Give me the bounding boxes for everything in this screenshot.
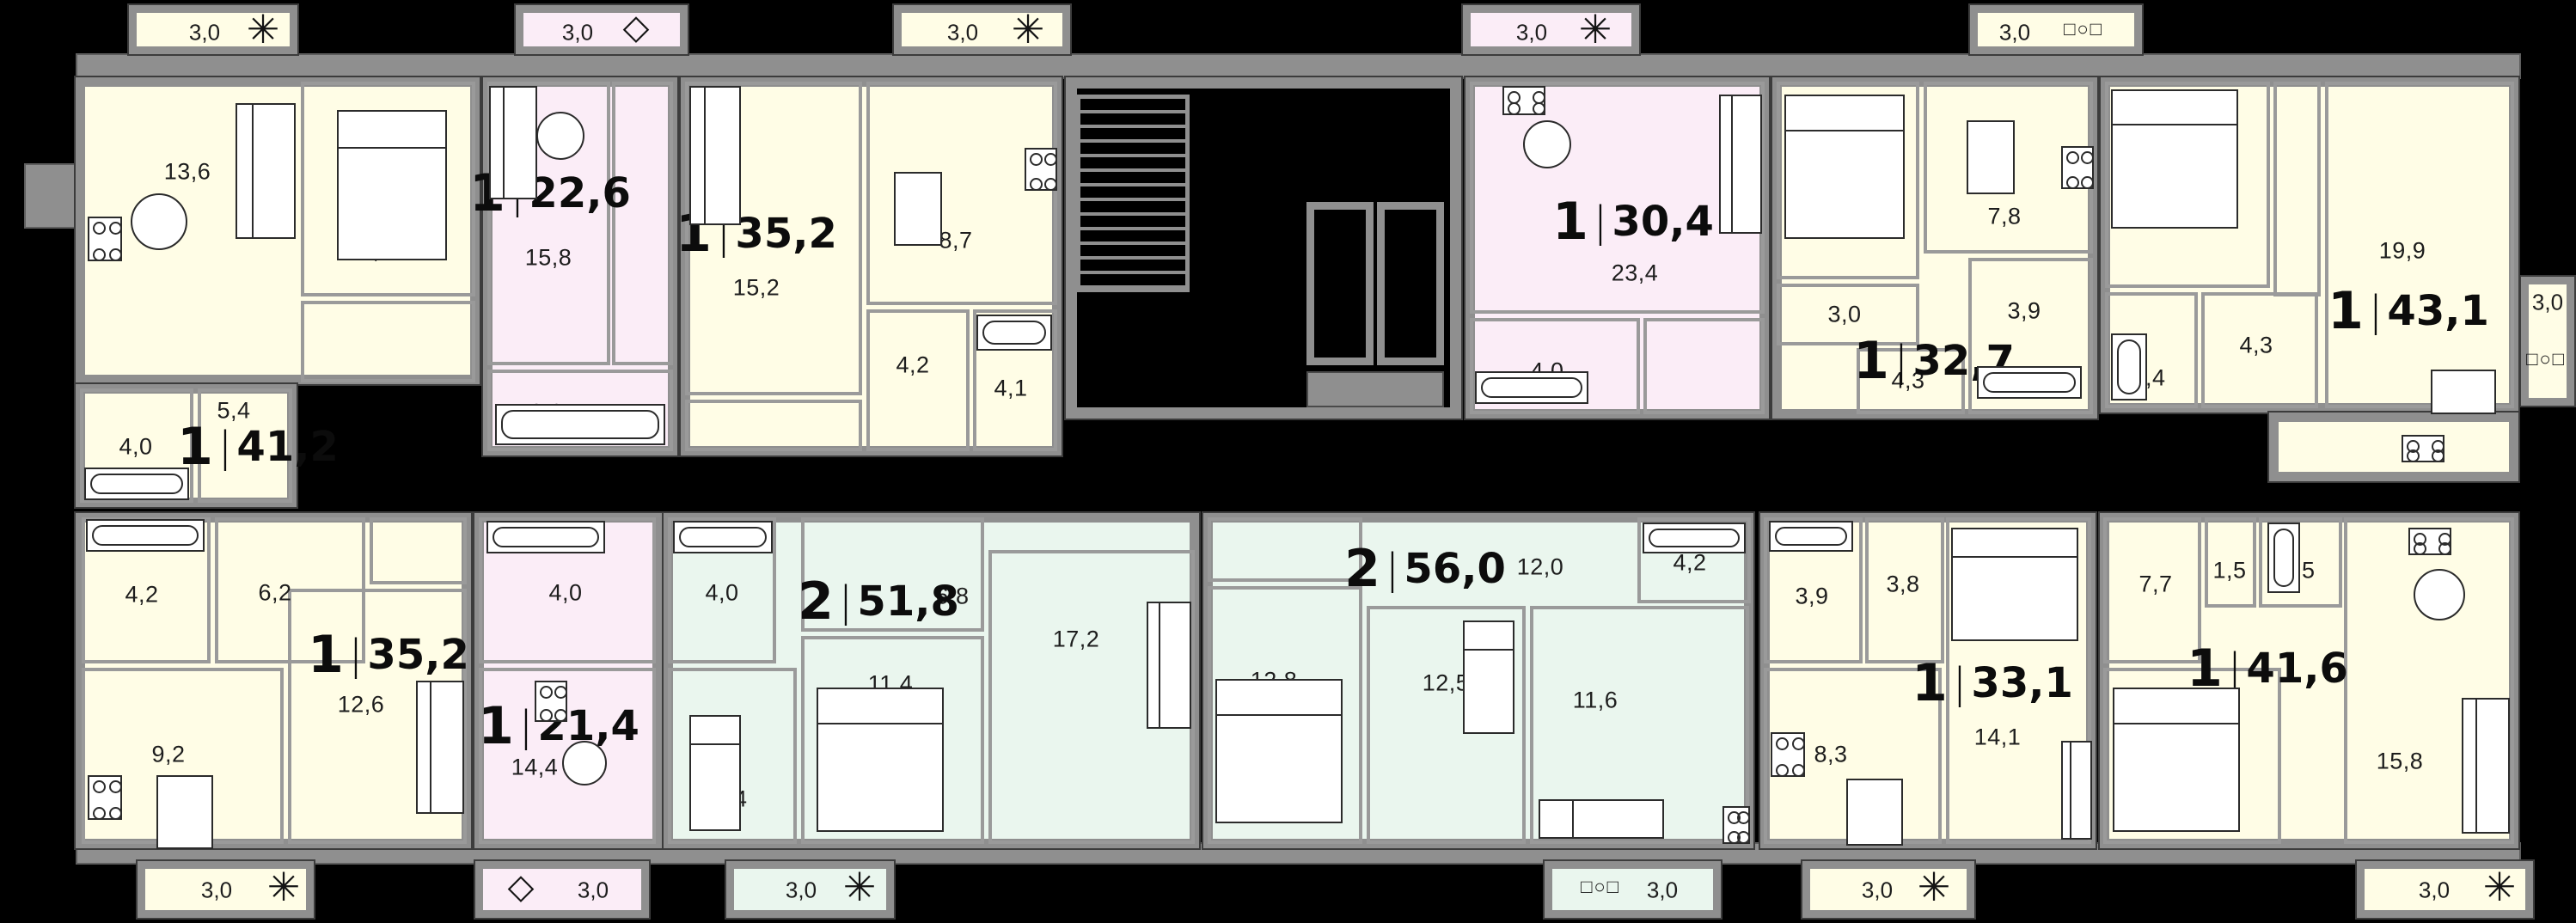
furniture-sofa-icon [1539, 799, 1664, 839]
furniture-sofa-icon [1719, 95, 1762, 234]
furniture-sofa-icon [489, 86, 537, 199]
apartment-rooms-count: 2 [798, 576, 834, 627]
apartment-label: 1|43,1 [2328, 285, 2489, 337]
apartment-label: 1|41,2 [177, 421, 339, 473]
room-area-label: 4,2 [125, 582, 158, 608]
apartment-total-area: 43,1 [2387, 290, 2488, 332]
bathtub-icon [2267, 523, 2300, 593]
room-area-label: 4,3 [2239, 333, 2273, 359]
bathtub-icon [1475, 371, 1588, 404]
stove-icon [1502, 86, 1545, 115]
furniture-sofa-icon [1147, 602, 1191, 729]
bathtub-icon [84, 468, 189, 500]
apartment-unit-bottom-1[interactable] [76, 513, 471, 848]
furniture-table-icon [1523, 120, 1571, 168]
room-area-label: 1,5 [2212, 558, 2246, 584]
furniture-table-icon [536, 112, 584, 160]
room-area-label: 3,8 [1886, 572, 1919, 598]
apartment-total-area: 35,2 [367, 634, 468, 675]
apartment-label: 2|51,8 [798, 576, 959, 627]
separator-bar: | [352, 633, 358, 677]
bathtub-icon [1643, 523, 1746, 553]
furniture-bed-icon [689, 715, 741, 831]
plant-icon: ✳ [843, 864, 877, 910]
stove-icon [1025, 148, 1057, 191]
balcony-bottom-2 [475, 861, 649, 918]
easel-icon: ◇ [508, 867, 535, 907]
balcony-bottom-4 [1545, 861, 1721, 918]
furniture-table-icon [1967, 120, 2015, 194]
apartment-total-area: 51,8 [857, 581, 958, 622]
room-area-label: 8,3 [1814, 742, 1847, 768]
plant-icon: ✳ [267, 864, 301, 910]
apartment-rooms-count: 1 [2187, 643, 2223, 694]
room-area-label: 4,0 [548, 580, 582, 607]
bathtub-icon [673, 521, 773, 553]
stove-icon [2408, 528, 2451, 555]
bathtub-icon [86, 519, 205, 552]
room-area-label: 4,2 [1673, 550, 1706, 577]
apartment-label: 1|30,4 [1552, 196, 1714, 248]
room-area-label: 14,1 [1974, 724, 2022, 751]
separator-bar: | [222, 425, 228, 469]
separator-bar: | [1956, 661, 1962, 706]
room-area-label: 8,7 [939, 228, 972, 254]
furniture-table-icon [156, 775, 213, 849]
bathtub-icon [1977, 366, 2082, 399]
room-area-label: 12,6 [338, 692, 385, 718]
elevator-shaft [1306, 202, 1374, 365]
balcony-area-label: 3,0 [2532, 290, 2563, 316]
chairs-icon: □○□ [2526, 348, 2566, 370]
apartment-rooms-count: 1 [1853, 335, 1889, 387]
furniture-bed-icon [337, 110, 447, 260]
apartment-label: 1|35,2 [308, 629, 469, 681]
room-area-label: 3,9 [2007, 298, 2041, 325]
apartment-rooms-count: 1 [2328, 285, 2364, 337]
bathtub-icon [1769, 521, 1853, 552]
balcony-area-label: 3,0 [947, 20, 978, 46]
apartment-rooms-count: 1 [478, 700, 514, 752]
apartment-unit-bottom-2[interactable] [474, 513, 662, 848]
apartment-total-area: 22,6 [529, 173, 630, 214]
furniture-table-icon [2431, 370, 2496, 414]
chairs-icon: □○□ [1581, 876, 1620, 898]
balcony-top-2 [516, 5, 688, 54]
furniture-table-icon [562, 741, 607, 785]
apartment-total-area: 30,4 [1612, 201, 1713, 242]
balcony-area-label: 3,0 [578, 877, 609, 904]
furniture-sofa-icon [689, 86, 741, 225]
room-area-label: 9,2 [151, 742, 185, 768]
bathtub-icon [976, 315, 1052, 351]
furniture-bed-icon [1784, 95, 1905, 239]
furniture-sofa-icon [2462, 698, 2510, 834]
room-area-label: 4,0 [119, 434, 152, 461]
balcony-area-label: 3,0 [1999, 20, 2030, 46]
furniture-table-icon [1846, 779, 1903, 846]
plant-icon: ✳ [1918, 864, 1951, 910]
separator-bar: | [842, 579, 848, 624]
room-area-label: 14,4 [511, 755, 559, 781]
stove-icon [1771, 732, 1805, 777]
room-area-label: 5,4 [217, 398, 250, 425]
furniture-sofa-icon [2061, 741, 2092, 840]
furniture-table-icon [2414, 569, 2465, 620]
separator-bar: | [1597, 199, 1603, 244]
balcony-area-label: 3,0 [189, 20, 220, 46]
apartment-rooms-count: 1 [1912, 657, 1948, 709]
apartment-label: 2|56,0 [1344, 543, 1506, 595]
stairwell-icon [1076, 95, 1190, 292]
bathtub-icon [2111, 333, 2147, 400]
apartment-unit-top-6[interactable] [2269, 413, 2518, 481]
apartment-total-area: 41,6 [2246, 648, 2347, 689]
apartment-rooms-count: 1 [177, 421, 213, 473]
room-area-label: 12,0 [1517, 554, 1564, 581]
balcony-area-label: 3,0 [1862, 877, 1893, 904]
room-area-label: 3,9 [1795, 584, 1828, 610]
apartment-total-area: 56,0 [1404, 548, 1505, 590]
floor-plan-canvas: 13,615,25,44,01|41,23,0✳15,83,81|22,63,0… [0, 0, 2576, 923]
plant-icon: ✳ [1012, 6, 1045, 52]
room-area-label: 4,2 [896, 352, 929, 379]
plant-icon: ✳ [247, 6, 280, 52]
balcony-top-4 [1463, 5, 1639, 54]
elevator-shaft [1377, 202, 1444, 365]
bathtub-icon [495, 404, 665, 445]
facade-wall-top [76, 53, 2521, 79]
room-area-label: 19,9 [2379, 238, 2426, 265]
room-area-label: 15,2 [733, 275, 780, 302]
plant-icon: ✳ [1579, 6, 1612, 52]
room-area-label: 15,8 [2377, 749, 2424, 775]
separator-bar: | [523, 704, 529, 749]
stove-icon [1722, 806, 1750, 844]
entrance-canopy [24, 163, 77, 229]
apartment-rooms-count: 1 [308, 629, 344, 681]
room-area-label: 11,6 [1573, 688, 1618, 714]
room-area-label: 13,6 [164, 159, 211, 186]
furniture-table-icon [894, 172, 942, 246]
apartment-rooms-count: 2 [1344, 543, 1380, 595]
room-area-label: 3,0 [1827, 302, 1861, 328]
balcony-area-label: 3,0 [1516, 20, 1547, 46]
bathtub-icon [486, 521, 605, 553]
room-area-label: 17,2 [1053, 627, 1100, 653]
balcony-area-label: 3,0 [786, 877, 817, 904]
separator-bar: | [2231, 646, 2237, 691]
stove-icon [88, 217, 122, 261]
balcony-area-label: 3,0 [1647, 877, 1678, 904]
stove-icon [2402, 435, 2444, 462]
vent-shaft [1306, 371, 1444, 407]
plant-icon: ✳ [2483, 864, 2517, 910]
furniture-table-icon [131, 193, 187, 250]
balcony-area-label: 3,0 [2419, 877, 2450, 904]
room-area-label: 4,0 [705, 580, 738, 607]
furniture-sofa-icon [236, 103, 296, 239]
apartment-total-area: 41,2 [236, 426, 338, 468]
apartment-total-area: 33,1 [1971, 663, 2072, 704]
furniture-bed-icon [1951, 528, 2078, 641]
stove-icon [535, 681, 567, 722]
chairs-icon: □○□ [2064, 18, 2103, 40]
apartment-label: 1|41,6 [2187, 643, 2348, 694]
apartment-label: 1|33,1 [1912, 657, 2073, 709]
furniture-bed-icon [2111, 89, 2238, 229]
separator-bar: | [1389, 547, 1395, 591]
furniture-bed-icon [1463, 620, 1514, 734]
furniture-bed-icon [2113, 688, 2240, 832]
furniture-sofa-icon [416, 681, 464, 814]
room-area-label: 7,8 [1987, 204, 2021, 230]
room-area-label: 7,7 [2139, 572, 2172, 598]
balcony-area-label: 3,0 [201, 877, 232, 904]
stove-icon [2061, 146, 2094, 189]
room-area-label: 4,1 [994, 376, 1027, 402]
furniture-bed-icon [1215, 679, 1343, 823]
stove-icon [88, 775, 122, 820]
room-area-label: 15,8 [525, 245, 572, 272]
apartment-rooms-count: 1 [1552, 196, 1588, 248]
apartment-total-area: 35,2 [735, 213, 836, 254]
separator-bar: | [2372, 289, 2378, 333]
easel-icon: ◇ [623, 8, 650, 47]
separator-bar: | [1898, 339, 1904, 383]
room-area-label: 23,4 [1612, 260, 1659, 287]
furniture-bed-icon [817, 688, 944, 832]
balcony-top-5 [1970, 5, 2142, 54]
room-area-label: 6,2 [258, 580, 291, 607]
balcony-area-label: 3,0 [562, 20, 593, 46]
